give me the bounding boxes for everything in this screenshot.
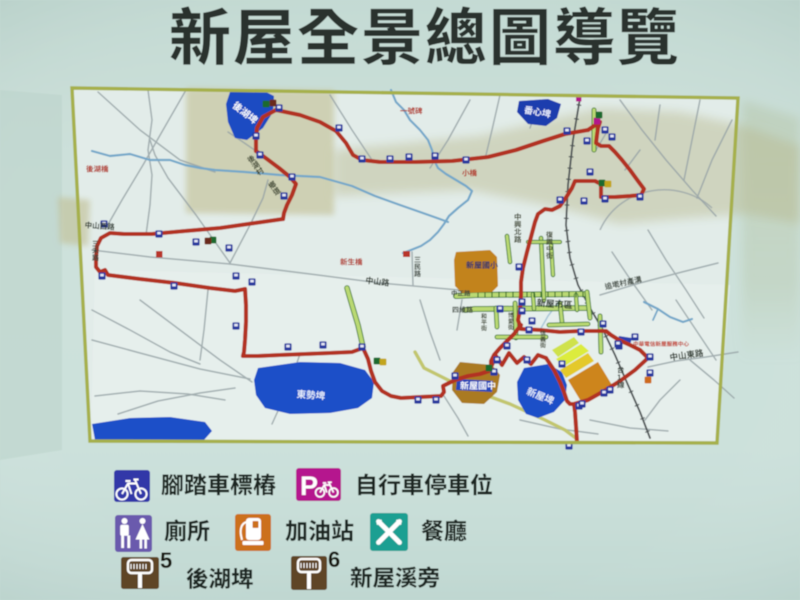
svg-text:P: P [300, 471, 318, 501]
svg-text:6: 6 [328, 547, 340, 572]
svg-text:5: 5 [160, 548, 172, 573]
